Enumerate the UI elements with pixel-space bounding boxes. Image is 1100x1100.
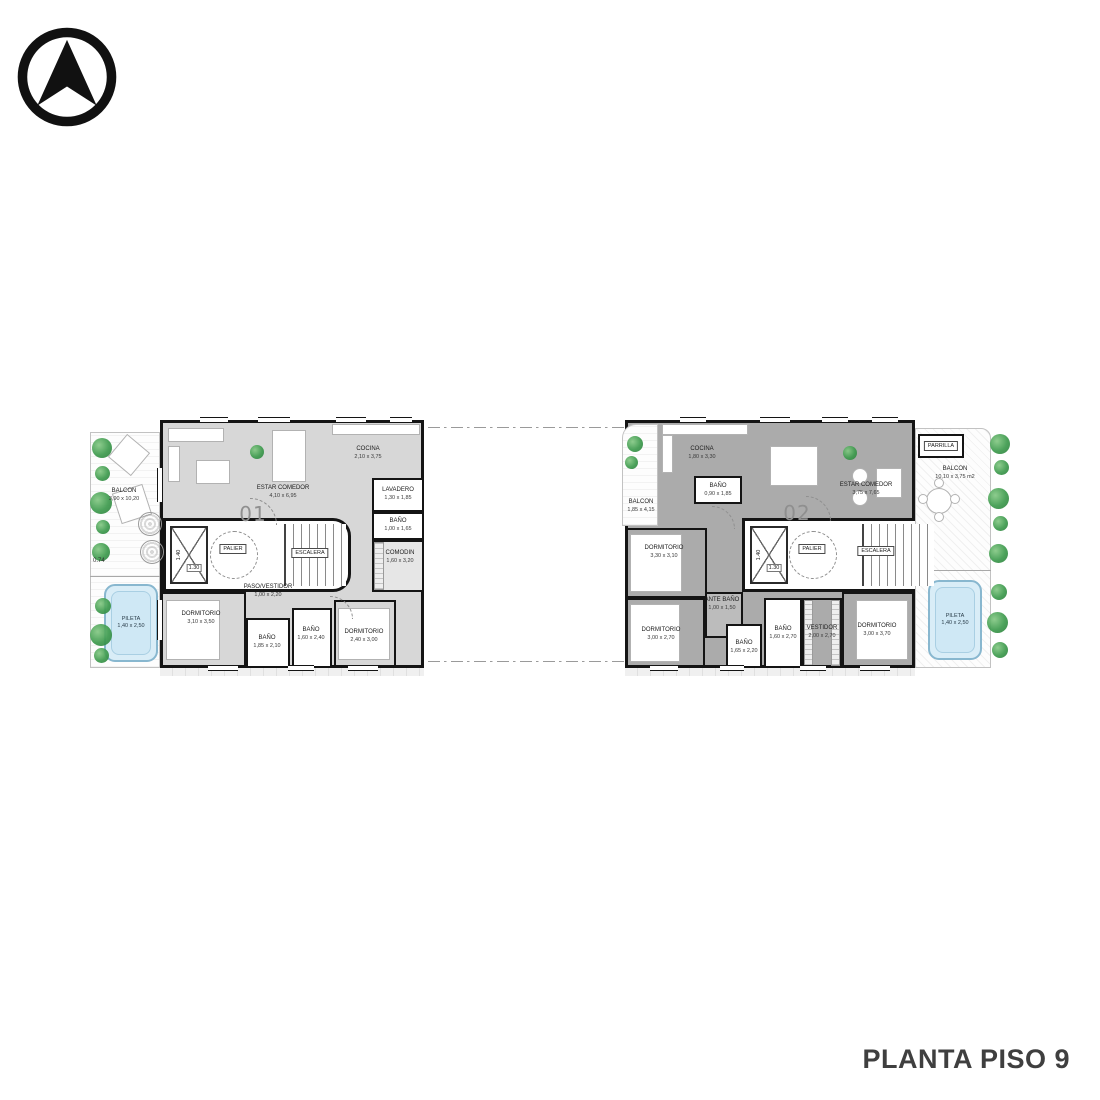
room-label-dormitorio-01a: DORMITORIO3,10 x 3,50 <box>182 611 221 625</box>
room-label-estar-02: ESTAR COMEDOR3,75 x 7,65 <box>840 482 893 496</box>
elevator-depth-label: 1.30 <box>767 564 782 572</box>
plant-icon <box>991 584 1007 600</box>
window <box>822 417 848 423</box>
furniture-bed <box>630 534 682 592</box>
closet <box>374 542 384 590</box>
room-label-dormitorio-01b: DORMITORIO2,40 x 3,00 <box>345 629 384 643</box>
pool-02: PILETA1,40 x 2,50 <box>928 580 982 660</box>
plant-icon <box>92 438 112 458</box>
plant-icon <box>843 446 857 460</box>
plant-icon <box>95 598 111 614</box>
window <box>760 417 790 423</box>
plant-icon <box>994 460 1009 475</box>
window <box>258 417 290 423</box>
furniture-chair <box>934 512 944 522</box>
tree-icon <box>138 512 162 536</box>
window <box>157 600 163 640</box>
furniture-bed <box>166 600 220 660</box>
room-label-balcon-02-left: BALCON1,85 x 4,15 <box>627 499 654 513</box>
plant-icon <box>993 516 1008 531</box>
plant-icon <box>90 624 112 646</box>
furniture-dining-table <box>272 430 306 482</box>
room-label-bano-01b: BAÑO1,85 x 2,10 <box>253 635 280 649</box>
room-label-pileta-01: PILETA1,40 x 2,50 <box>106 586 156 660</box>
room-label-parrilla-02: PARRILLA <box>924 441 958 451</box>
axis-line-bottom <box>428 661 624 662</box>
furniture-sofa <box>168 446 180 482</box>
plant-icon <box>627 436 643 452</box>
furniture-rug <box>196 460 230 484</box>
room-label-comodin-01: COMODIN1,60 x 3,20 <box>386 550 415 564</box>
plant-icon <box>987 612 1008 633</box>
elevator-width-label: 1.40 <box>176 550 182 561</box>
window <box>157 468 163 502</box>
room-label-bano-02b: BAÑO1,65 x 2,20 <box>730 640 757 654</box>
north-arrow-icon <box>14 24 120 130</box>
room-label-bano-02a: BAÑO0,90 x 1,85 <box>704 483 731 497</box>
furniture-round-table <box>926 488 952 514</box>
terrace-divider-01 <box>90 576 160 577</box>
plant-icon <box>988 488 1009 509</box>
window <box>348 665 378 671</box>
room-label-pileta-02: PILETA1,40 x 2,50 <box>930 582 980 658</box>
window <box>720 665 744 671</box>
floor-plan-sheet: BALCON3,90 x 10,20 0.74 PILETA1,40 x 2,5… <box>0 0 1100 1100</box>
window <box>208 665 238 671</box>
room-label-dormitorio-02c: DORMITORIO3,00 x 3,70 <box>858 623 897 637</box>
tree-icon <box>140 540 164 564</box>
room-label-lavadero-01: LAVADERO1,30 x 1,85 <box>382 487 414 501</box>
window <box>680 417 706 423</box>
room-label-antebano-02: ANTE BAÑO1,00 x 1,50 <box>705 597 740 611</box>
room-label-vestidor-02: VESTIDOR2,00 x 2,70 <box>807 625 838 639</box>
room-label-dormitorio-02a: DORMITORIO3,30 x 3,10 <box>645 545 684 559</box>
palier-circle <box>210 531 258 579</box>
room-label-escalera-02: ESCALERA <box>857 546 894 556</box>
plant-icon <box>989 544 1008 563</box>
window <box>200 417 228 423</box>
plant-icon <box>96 520 110 534</box>
room-label-palier-01: PALIER <box>219 544 246 554</box>
room-label-dormitorio-02b: DORMITORIO3,00 x 2,70 <box>642 627 681 641</box>
dimension-074: 0.74 <box>93 558 105 564</box>
furniture-chair <box>918 494 928 504</box>
furniture-sofa <box>168 428 224 442</box>
furniture-kitchen-counter <box>662 435 673 473</box>
furniture-dining-table <box>770 446 818 486</box>
room-label-balcon-01: BALCON3,90 x 10,20 <box>109 488 139 502</box>
palier-circle <box>789 531 837 579</box>
plant-icon <box>992 642 1008 658</box>
room-label-cocina-02: COCINA1,80 x 3,30 <box>688 446 715 460</box>
room-label-cocina-01: COCINA2,10 x 3,75 <box>354 446 381 460</box>
elevator-width-label: 1.40 <box>756 550 762 561</box>
window <box>336 417 366 423</box>
room-label-estar-01: ESTAR COMEDOR4,10 x 6,95 <box>257 485 310 499</box>
axis-line-top <box>428 427 624 428</box>
window <box>650 665 678 671</box>
room-label-bano-01a: BAÑO1,00 x 1,65 <box>384 518 411 532</box>
window <box>860 665 890 671</box>
unit-number-01: 01 <box>239 502 266 526</box>
room-label-balcon-02-right: BALCON10,10 x 3,75 m2 <box>935 466 974 480</box>
room-label-palier-02: PALIER <box>798 544 825 554</box>
plant-icon <box>94 648 109 663</box>
plant-icon <box>95 466 110 481</box>
plant-icon <box>625 456 638 469</box>
window <box>390 417 412 423</box>
elevator-depth-label: 1.30 <box>187 564 202 572</box>
room-label-paso-01: PASO/VESTIDOR1,00 x 2,20 <box>244 584 293 598</box>
room-label-bano-02c: BAÑO1,60 x 2,70 <box>769 626 796 640</box>
room-label-escalera-01: ESCALERA <box>291 548 328 558</box>
plant-icon <box>250 445 264 459</box>
window <box>800 665 826 671</box>
window <box>872 417 898 423</box>
room-label-bano-01c: BAÑO1,60 x 2,40 <box>297 627 324 641</box>
page-title: PLANTA PISO 9 <box>862 1044 1070 1075</box>
plant-icon <box>990 434 1010 454</box>
pool-01: PILETA1,40 x 2,50 <box>104 584 158 662</box>
furniture-chair <box>950 494 960 504</box>
furniture-kitchen-counter <box>332 424 420 435</box>
unit-number-02: 02 <box>783 501 810 525</box>
furniture-kitchen-counter <box>662 424 748 435</box>
window <box>288 665 314 671</box>
